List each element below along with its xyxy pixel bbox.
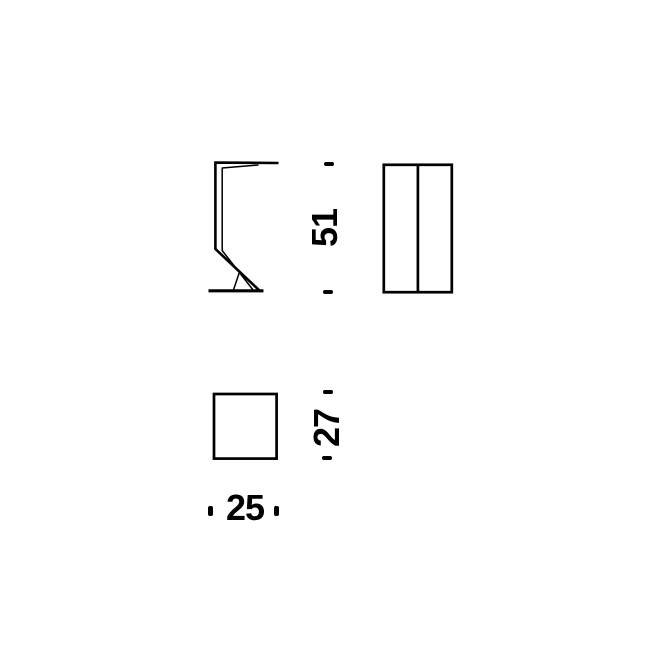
height-dim-top-tick <box>324 162 334 166</box>
dimension-diagram: 51 27 25 <box>0 0 672 672</box>
height-dim-label: 51 <box>305 188 345 268</box>
height-dim-bottom-tick <box>323 290 333 294</box>
side-profile-outer-line <box>215 163 278 292</box>
depth-dim-label: 27 <box>307 388 347 468</box>
top-view-outline <box>214 394 277 459</box>
orthographic-views-drawing <box>0 0 672 672</box>
width-dim-label: 25 <box>205 488 285 528</box>
side-view-drawing <box>209 163 279 292</box>
front-view-drawing <box>384 165 452 292</box>
top-view-drawing <box>214 394 277 459</box>
side-foot-line <box>234 273 240 290</box>
